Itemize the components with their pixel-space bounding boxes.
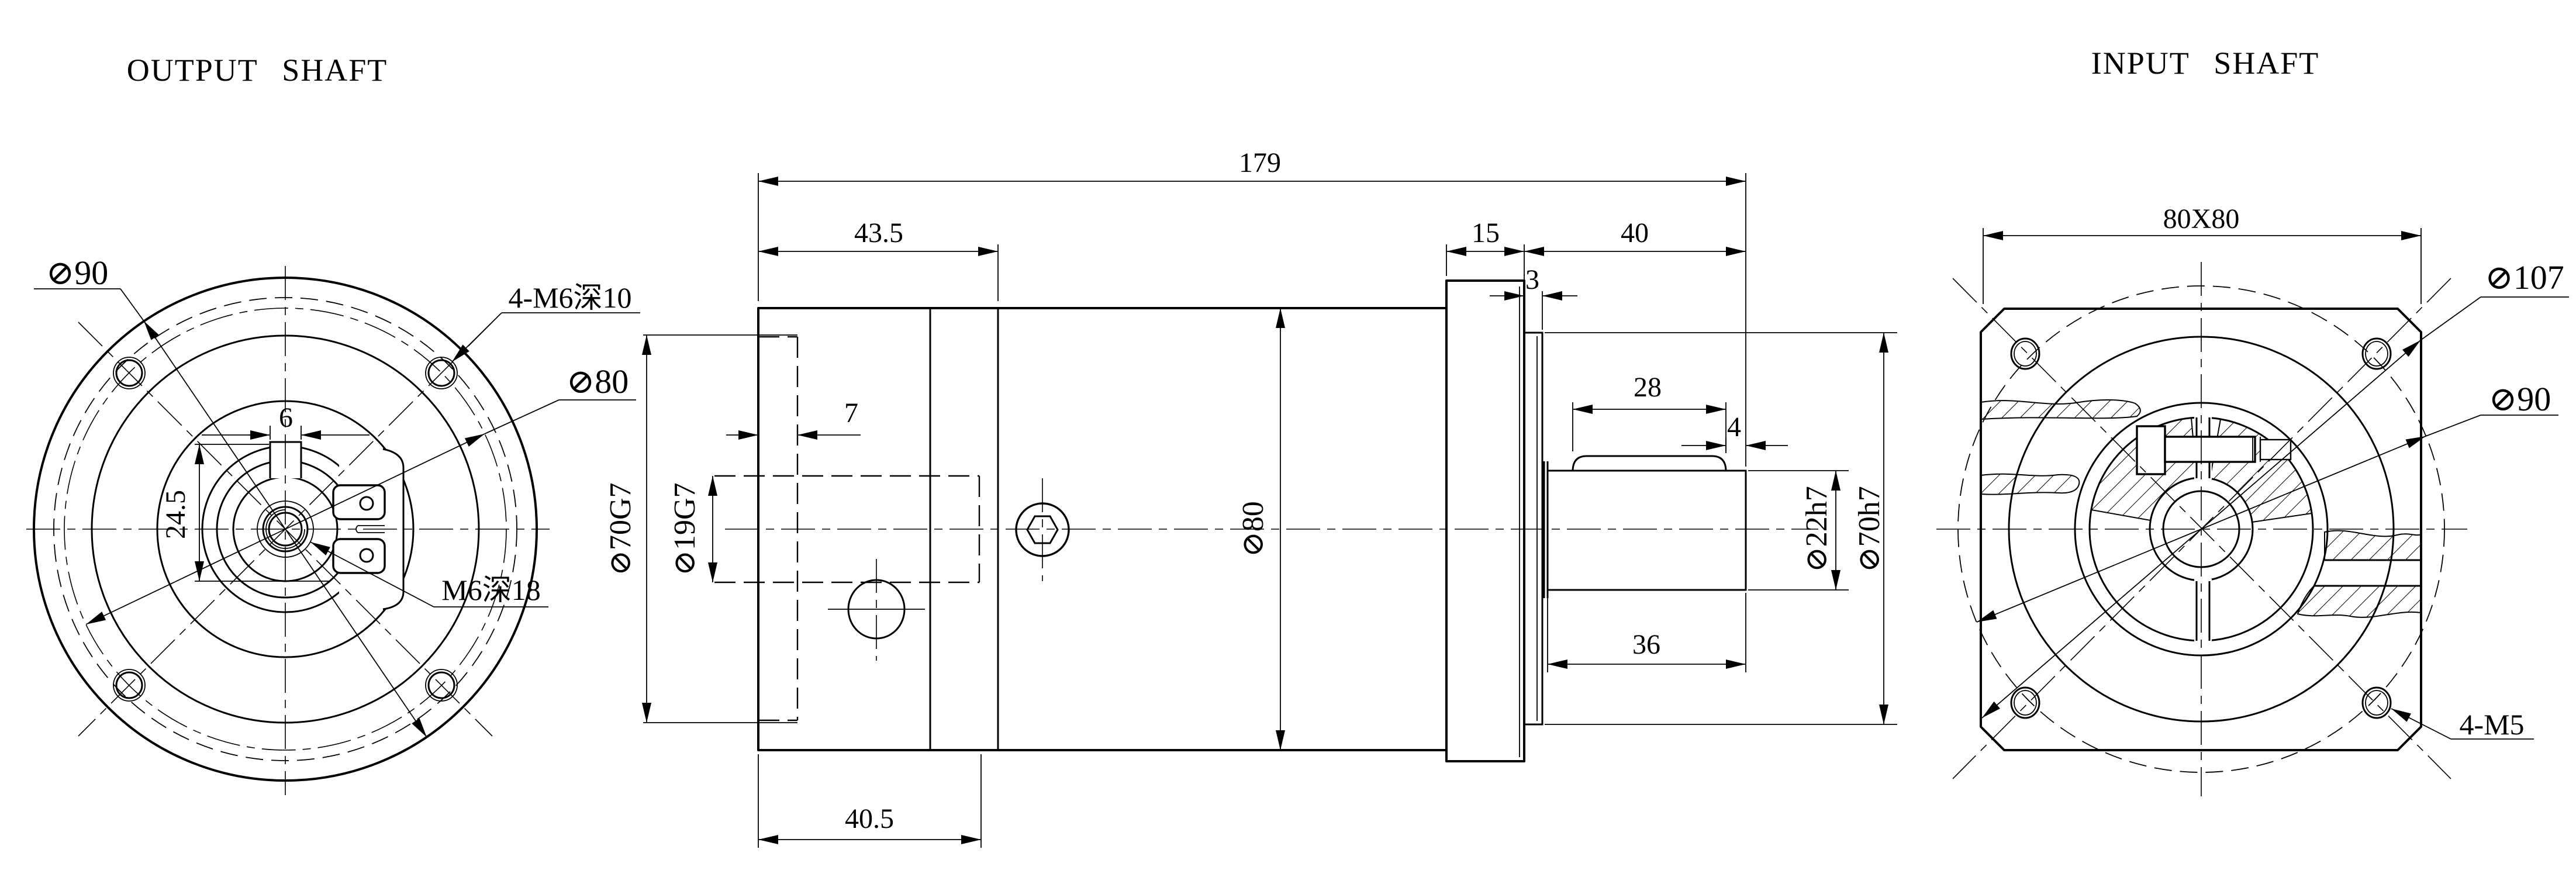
label-dia19g7: ⊘19G7 <box>668 482 702 575</box>
label-dim-6: 6 <box>279 402 293 433</box>
label-dim-40-5: 40.5 <box>845 803 894 834</box>
dim-80x80-lines <box>1983 228 2421 304</box>
label-dia22h7: ⊘22h7 <box>1800 486 1833 572</box>
label-dim-43-5: 43.5 <box>854 217 903 248</box>
hidden-lines <box>714 337 979 720</box>
engineering-drawing: OUTPUT SHAFT⊘904-M6深10⊘80624.5M6深18⊘70G7… <box>0 0 2576 877</box>
label-dim-3: 3 <box>1525 264 1539 295</box>
label-dim-179: 179 <box>1239 147 1281 178</box>
side-dimensions <box>643 173 1897 848</box>
label-dim-24-5: 24.5 <box>160 490 191 539</box>
label-dim-36: 36 <box>1632 629 1660 660</box>
label-dim-15: 15 <box>1472 217 1500 248</box>
label-dia107: ⊘107 <box>2485 258 2564 296</box>
label-dia80-left: ⊘80 <box>567 362 629 400</box>
label-dim-40: 40 <box>1621 217 1649 248</box>
label-dia90-left: ⊘90 <box>46 254 109 292</box>
label-title-input: INPUT SHAFT <box>2091 46 2320 81</box>
label-dim-80x80: 80X80 <box>2163 203 2240 234</box>
label-dim-4: 4 <box>1727 412 1741 443</box>
label-dim-28: 28 <box>1634 372 1662 403</box>
side-section-view <box>643 173 1897 848</box>
shaft-key <box>1573 456 1726 471</box>
label-4m6-leader <box>452 313 640 362</box>
label-label-4m5: 4-M5 <box>2459 708 2524 741</box>
output-shaft-view <box>26 266 640 795</box>
input-shaft-outline <box>1548 471 1746 590</box>
label-dia70h7: ⊘70h7 <box>1853 486 1886 572</box>
input-centerlines <box>1936 262 2467 796</box>
label-label-4m6: 4-M6深10 <box>508 281 631 314</box>
label-title-output: OUTPUT SHAFT <box>127 53 388 88</box>
drawing-stage: OUTPUT SHAFT⊘904-M6深10⊘80624.5M6深18⊘70G7… <box>0 0 2576 877</box>
label-label-m6-18: M6深18 <box>441 574 540 606</box>
input-flange-outline <box>1446 281 1524 761</box>
label-dia90-right: ⊘90 <box>2489 380 2551 418</box>
label-dia70g7: ⊘70G7 <box>604 482 637 575</box>
label-dim-7: 7 <box>844 398 858 429</box>
pilot-boss <box>1524 333 1542 724</box>
output-centerlines <box>26 266 550 795</box>
label-dia80-mid: ⊘80 <box>1237 501 1270 557</box>
